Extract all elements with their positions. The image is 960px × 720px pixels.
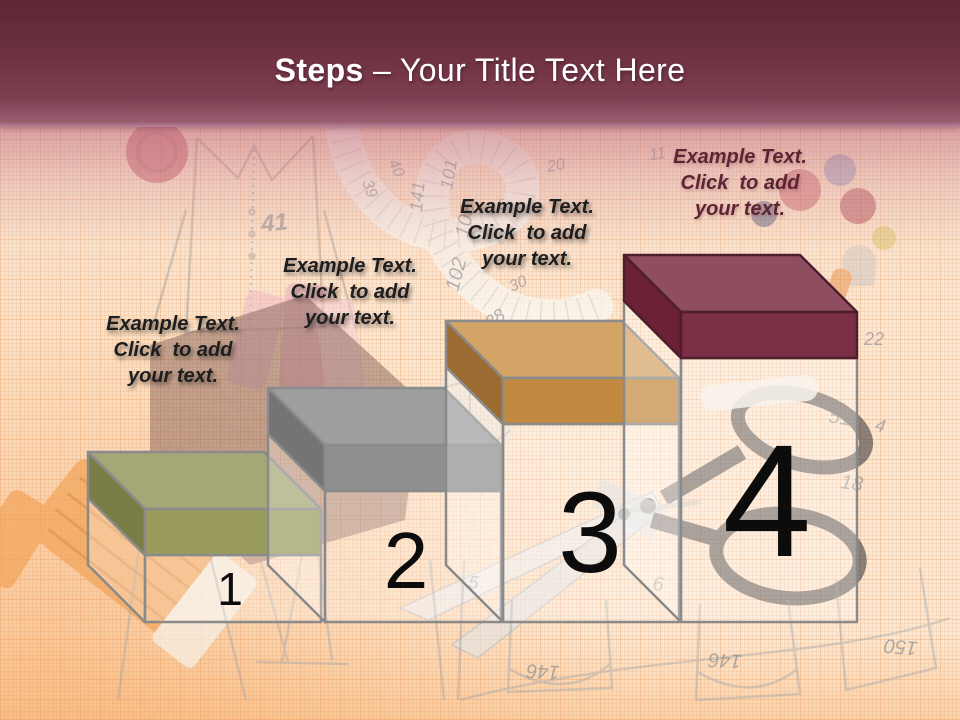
label-line: your text.	[640, 196, 840, 222]
label-line: your text.	[427, 246, 627, 272]
step-3-label[interactable]: Example Text. Click to add your text.	[427, 194, 627, 272]
slide-canvas: 41 103 102 101 141 138 30 20 39 40 5 51 …	[0, 0, 960, 720]
step-1-label[interactable]: Example Text. Click to add your text.	[73, 311, 273, 389]
step-4-label[interactable]: Example Text. Click to add your text.	[640, 144, 840, 222]
label-line: Click to add	[250, 279, 450, 305]
step-4-number: 4	[723, 411, 812, 590]
step-3-number: 3	[558, 469, 622, 597]
label-line: Click to add	[640, 170, 840, 196]
label-line: your text.	[250, 305, 450, 331]
label-line: your text.	[73, 363, 273, 389]
label-line: Example Text.	[427, 194, 627, 220]
label-line: Example Text.	[250, 253, 450, 279]
label-line: Example Text.	[73, 311, 273, 337]
step-2-number: 2	[384, 516, 429, 605]
label-line: Example Text.	[640, 144, 840, 170]
label-line: Click to add	[427, 220, 627, 246]
step-2-label[interactable]: Example Text. Click to add your text.	[250, 253, 450, 331]
label-line: Click to add	[73, 337, 273, 363]
step-1-number: 1	[217, 563, 243, 615]
step-4-cap-front	[681, 312, 857, 358]
step-4-box[interactable]: 4	[624, 255, 857, 622]
